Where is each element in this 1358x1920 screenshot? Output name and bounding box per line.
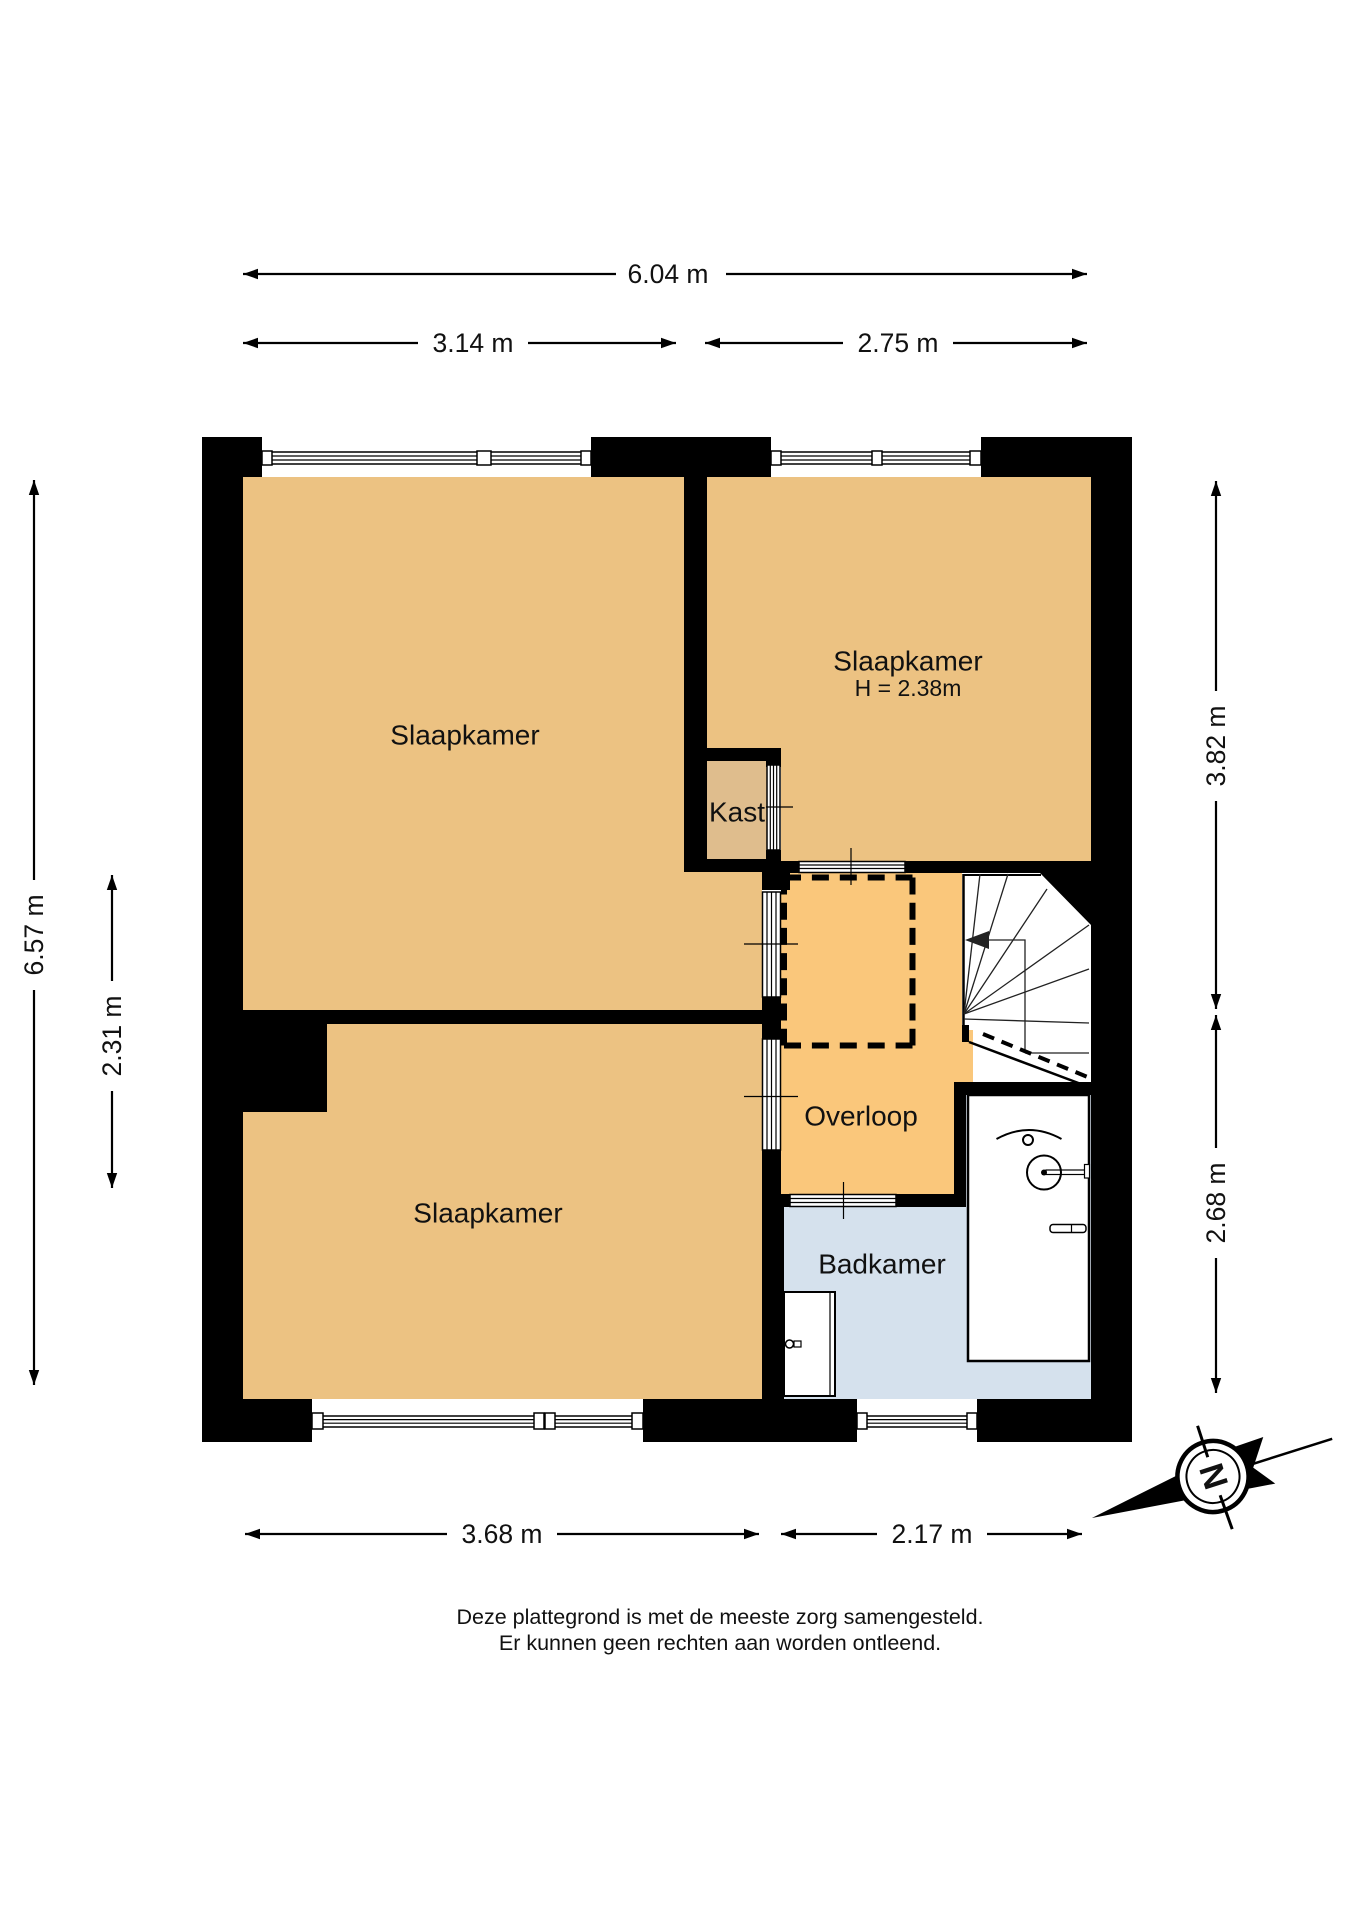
svg-text:Deze plattegrond is met de mee: Deze plattegrond is met de meeste zorg s… [456, 1605, 983, 1629]
svg-text:Kast: Kast [709, 797, 765, 828]
svg-text:6.57 m: 6.57 m [19, 894, 49, 975]
svg-text:2.17 m: 2.17 m [891, 1519, 972, 1549]
svg-text:Badkamer: Badkamer [818, 1249, 946, 1280]
svg-text:Slaapkamer: Slaapkamer [413, 1198, 562, 1229]
svg-text:Er kunnen geen rechten aan wor: Er kunnen geen rechten aan worden ontlee… [499, 1631, 941, 1655]
svg-text:3.68 m: 3.68 m [461, 1519, 542, 1549]
svg-text:2.75 m: 2.75 m [857, 328, 938, 358]
svg-text:2.68 m: 2.68 m [1201, 1162, 1231, 1243]
svg-text:3.14 m: 3.14 m [432, 328, 513, 358]
svg-text:6.04 m: 6.04 m [627, 259, 708, 289]
svg-text:3.82 m: 3.82 m [1201, 705, 1231, 786]
svg-text:2.31 m: 2.31 m [97, 995, 127, 1076]
svg-text:Slaapkamer: Slaapkamer [833, 646, 982, 677]
svg-text:Slaapkamer: Slaapkamer [390, 720, 539, 751]
svg-text:Overloop: Overloop [804, 1101, 918, 1132]
svg-text:H = 2.38m: H = 2.38m [855, 675, 962, 701]
